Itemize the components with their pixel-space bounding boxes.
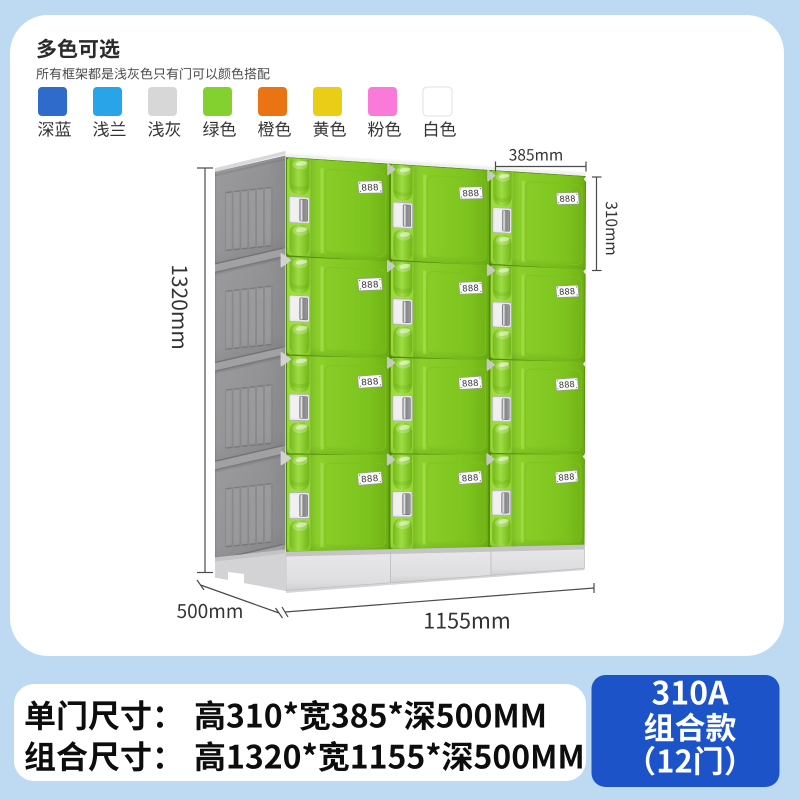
svg-text:888: 888 (559, 286, 576, 297)
svg-text:888: 888 (462, 378, 480, 389)
svg-text:888: 888 (461, 472, 479, 483)
svg-text:888: 888 (361, 375, 379, 387)
svg-text:888: 888 (361, 473, 379, 484)
svg-text:888: 888 (462, 188, 480, 198)
svg-text:888: 888 (462, 283, 480, 294)
svg-text:888: 888 (558, 471, 575, 482)
svg-text:888: 888 (361, 279, 379, 291)
svg-text:888: 888 (361, 182, 379, 193)
svg-text:888: 888 (559, 379, 576, 390)
svg-text:888: 888 (559, 193, 576, 203)
